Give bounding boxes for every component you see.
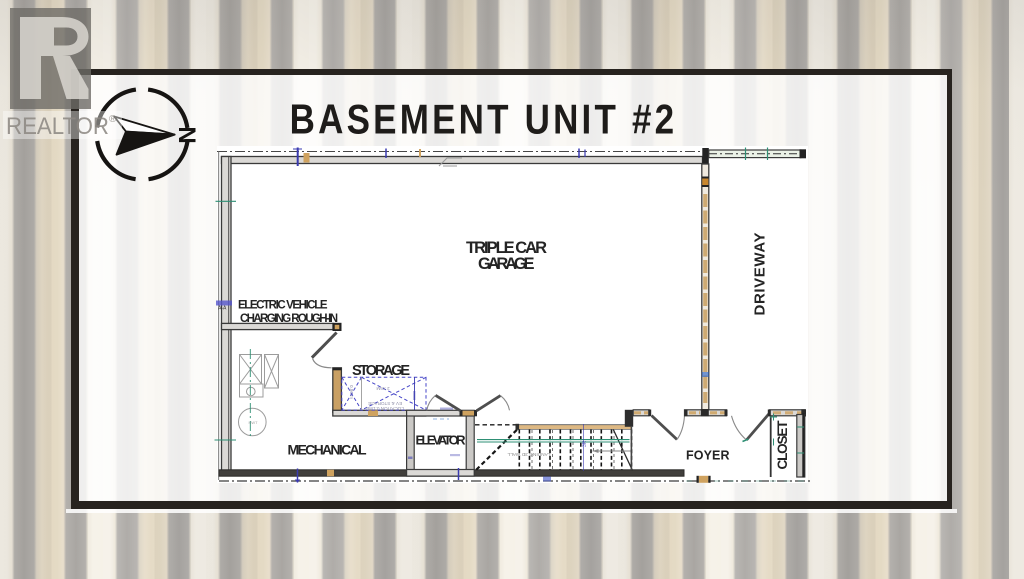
svg-text:®: ®	[109, 114, 117, 125]
svg-text:REALTOR: REALTOR	[6, 113, 109, 140]
